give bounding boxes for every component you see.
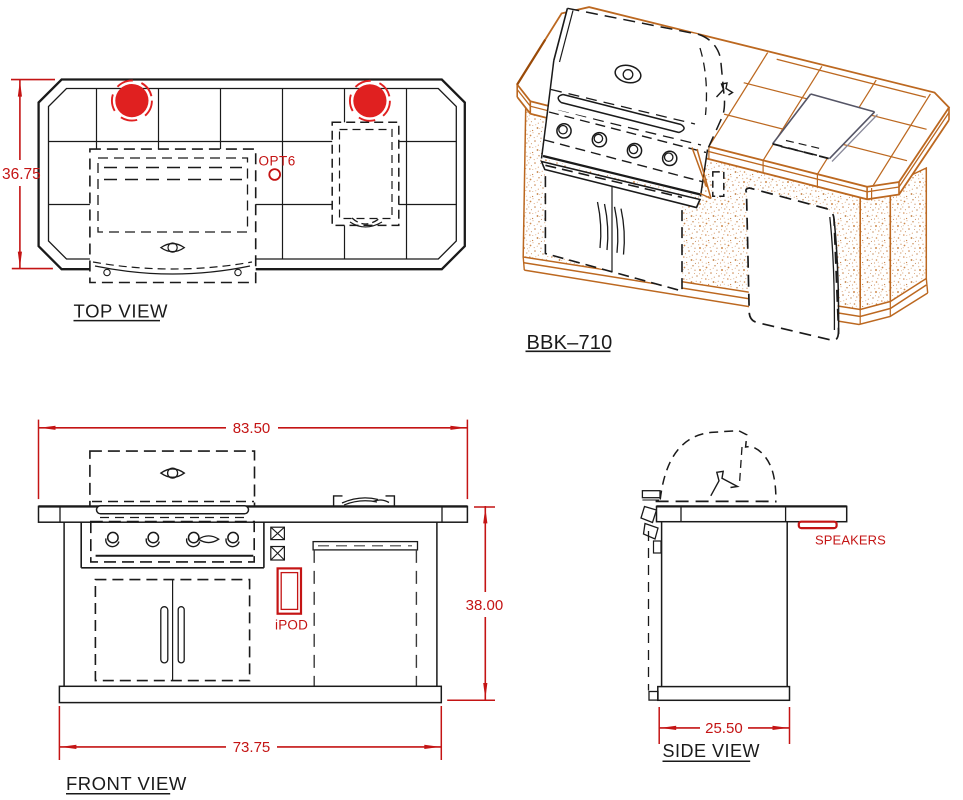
svg-text:SIDE VIEW: SIDE VIEW <box>663 741 761 761</box>
svg-text:36.75: 36.75 <box>2 166 41 183</box>
svg-text:38.00: 38.00 <box>466 597 504 614</box>
svg-text:iPOD: iPOD <box>275 618 308 633</box>
svg-text:83.50: 83.50 <box>233 420 271 437</box>
svg-text:25.50: 25.50 <box>705 720 743 737</box>
svg-text:OPT6: OPT6 <box>259 154 296 169</box>
svg-text:TOP VIEW: TOP VIEW <box>74 301 169 322</box>
svg-text:73.75: 73.75 <box>233 739 271 756</box>
svg-text:SPEAKERS: SPEAKERS <box>815 533 886 548</box>
svg-text:FRONT VIEW: FRONT VIEW <box>66 773 187 794</box>
